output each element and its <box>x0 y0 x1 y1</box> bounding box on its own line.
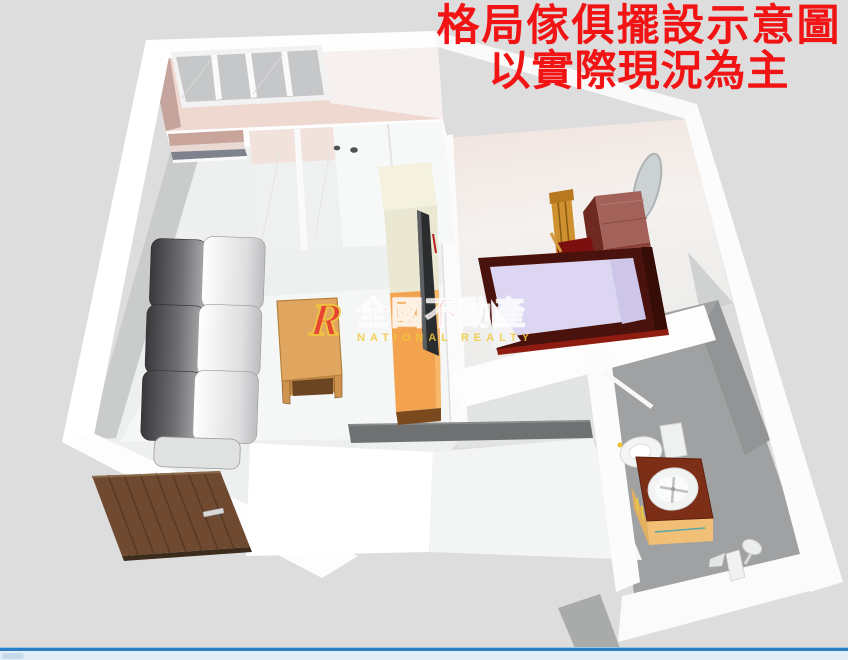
title-line-1: 格局傢俱擺設示意圖 <box>436 4 842 50</box>
sofa-ottoman <box>154 436 241 469</box>
sofa <box>140 234 266 470</box>
small-window <box>168 130 247 163</box>
balcony-window <box>171 45 330 108</box>
title-line-2: 以實際現況為主 <box>436 50 842 95</box>
statusbar-chip <box>2 653 24 659</box>
sliding-glass-door <box>249 127 343 253</box>
page-title: 格局傢俱擺設示意圖 以實際現況為主 <box>436 4 842 94</box>
wardrobe-handle <box>334 146 340 151</box>
coffee-table <box>277 298 342 404</box>
floorplan-render <box>0 0 848 660</box>
floorplan-page: R 全國不動產 NATIONAL REALTY 格局傢俱擺設示意圖 以實際現況為… <box>0 0 848 660</box>
wardrobe-handle <box>350 147 358 153</box>
statusbar <box>0 651 848 660</box>
wall-bottom-a <box>246 443 433 556</box>
